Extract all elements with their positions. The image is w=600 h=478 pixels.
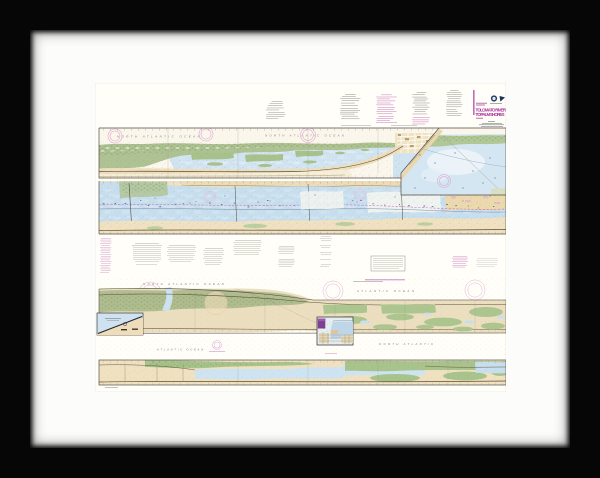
svg-text:NORTH ATLANTIC OCEAN: NORTH ATLANTIC OCEAN [265,134,346,138]
svg-text:ATLANTIC OCEAN: ATLANTIC OCEAN [356,289,416,293]
svg-text:NORTH ATLANTIC OCEAN: NORTH ATLANTIC OCEAN [143,282,226,286]
svg-text:NORTH ATLANTIC: NORTH ATLANTIC [379,342,435,346]
svg-text:NORTH ATLANTIC OCEAN: NORTH ATLANTIC OCEAN [117,135,202,139]
svg-text:TO PALM SHORES: TO PALM SHORES [476,112,505,117]
svg-text:ATLANTIC OCEAN: ATLANTIC OCEAN [156,348,205,352]
